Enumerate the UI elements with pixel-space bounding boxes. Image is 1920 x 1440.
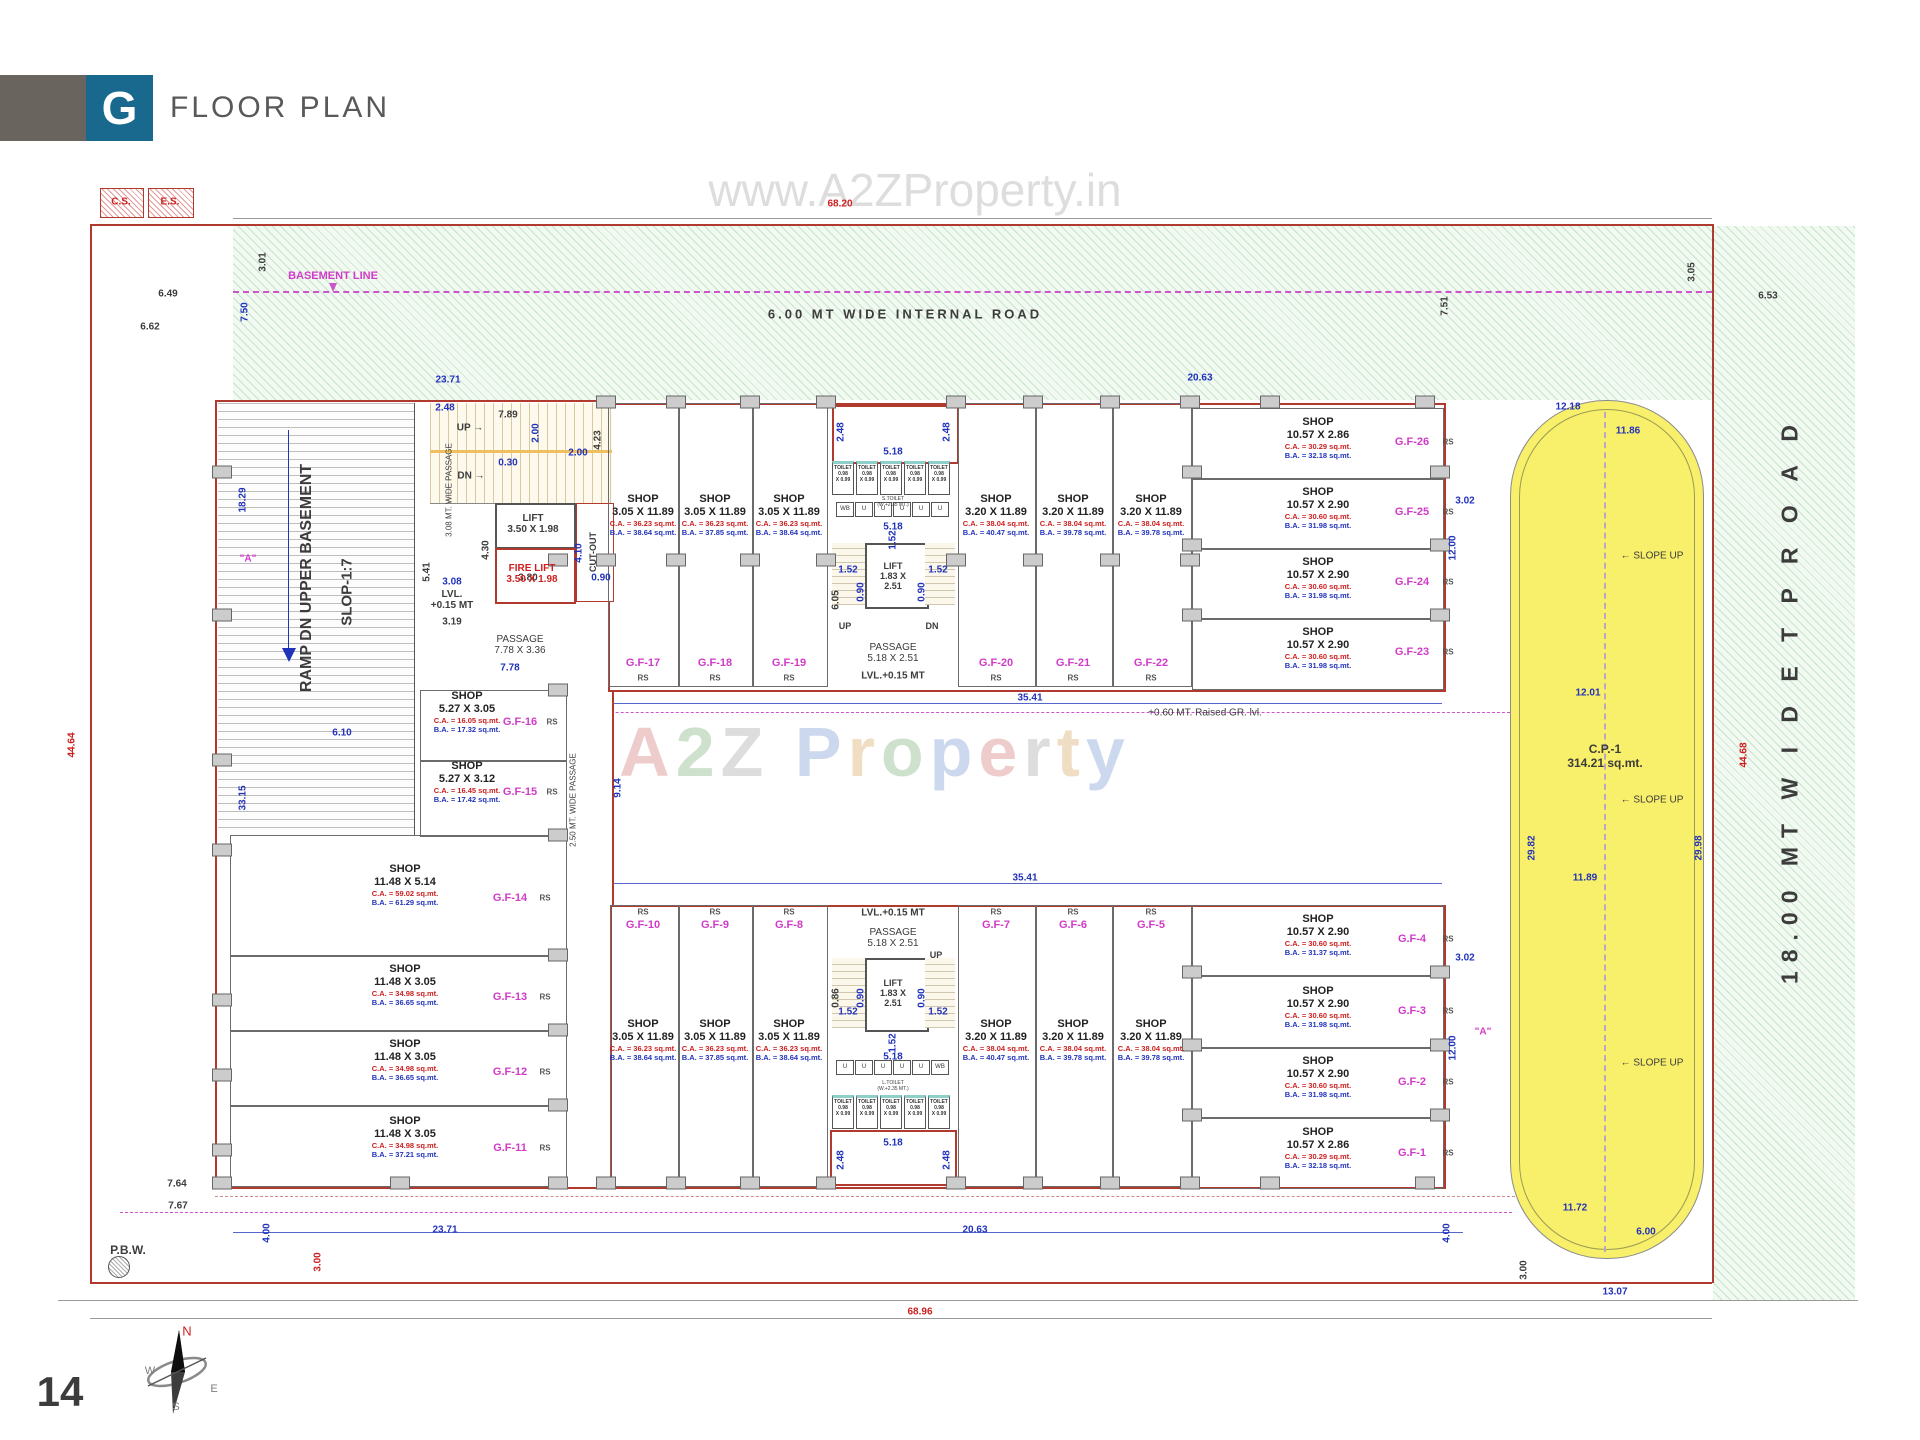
dimension-label: 35.41 — [1012, 873, 1037, 884]
rs-label: RS — [1442, 648, 1453, 657]
plan-label: 2.50 MT. WIDE PASSAGE — [569, 753, 578, 847]
shop-title: SHOP10.57 X 2.90C.A. = 30.60 sq.mt.B.A. … — [1285, 1055, 1352, 1099]
rs-label: RS — [783, 908, 794, 917]
dimension-label: 2.48 — [942, 1150, 953, 1169]
dimension-label: 29.98 — [1694, 835, 1705, 860]
shop-id: G.F-24 — [1395, 576, 1429, 588]
rs-label: RS — [539, 894, 550, 903]
dimension-label: 23.71 — [432, 1225, 457, 1236]
dimension-label: 7.67 — [168, 1201, 187, 1212]
dimension-label: 5.18 — [883, 1052, 902, 1063]
dimension-label: 0.90 — [856, 988, 867, 1007]
wall-column — [596, 396, 616, 409]
wall-column — [1430, 466, 1450, 479]
rs-label: RS — [709, 908, 720, 917]
plan-label: FIRE LIFT 3.50 X 1.98 — [506, 563, 557, 585]
plan-label: UP — [839, 621, 852, 631]
plan-label: S — [172, 1401, 179, 1413]
plan-label: LIFT 1.83 X 2.51 — [880, 561, 906, 591]
shop-room — [1035, 403, 1114, 687]
shop-id: G.F-8 — [775, 919, 803, 931]
wall-column — [816, 396, 836, 409]
toilet-cell: TOILET0.98X 0.99 — [880, 1095, 902, 1129]
plan-label: DN — [926, 621, 939, 631]
shop-room — [752, 403, 828, 687]
dimension-label: 5.18 — [883, 447, 902, 458]
dimension-label: 35.41 — [1017, 693, 1042, 704]
toilet-cell: TOILET0.98X 0.99 — [928, 461, 950, 495]
shop-title: SHOP3.05 X 11.89C.A. = 36.23 sq.mt.B.A. … — [610, 493, 677, 537]
wall-column — [548, 949, 568, 962]
rs-label: RS — [990, 674, 1001, 683]
wall-column — [1023, 1177, 1043, 1190]
wall-column — [1260, 396, 1280, 409]
floor-plan-page: G FLOOR PLAN www.A2ZProperty.in A2Z Prop… — [0, 0, 1920, 1440]
shop-title: SHOP3.05 X 11.89C.A. = 36.23 sq.mt.B.A. … — [756, 493, 823, 537]
shop-id: G.F-7 — [982, 919, 1010, 931]
dimension-label: 23.71 — [435, 375, 460, 386]
wall-column — [548, 1177, 568, 1190]
wall-column — [212, 994, 232, 1007]
dimension-label: 3.00 — [1519, 1260, 1530, 1279]
ramp-down-arrow-icon — [282, 648, 296, 662]
toilet-cell: TOILET0.98X 0.99 — [904, 1095, 926, 1129]
dimension-label: 7.64 — [167, 1179, 186, 1190]
dim-line-bottom — [233, 1232, 1463, 1233]
dimension-label: 20.63 — [962, 1225, 987, 1236]
rs-label: RS — [546, 788, 557, 797]
plan-label: W — [145, 1365, 155, 1377]
wall-column — [212, 466, 232, 479]
dimension-label: 4.00 — [262, 1223, 273, 1242]
dimension-label: 9.14 — [613, 778, 624, 797]
dimension-label: 6.49 — [158, 289, 177, 300]
wall-column — [1180, 1177, 1200, 1190]
dimension-label: 3.01 — [258, 252, 269, 271]
basement-line-arrow — [329, 283, 337, 292]
toilet-cell: TOILET0.98X 0.99 — [880, 461, 902, 495]
shop-id: G.F-16 — [503, 716, 537, 728]
wall-column — [1182, 466, 1202, 479]
dimension-label: 2.48 — [836, 422, 847, 441]
plan-label: E — [210, 1383, 217, 1395]
dimension-label: 6.53 — [1758, 291, 1777, 302]
wall-column — [1180, 396, 1200, 409]
wall-column — [548, 829, 568, 842]
shop-title: SHOP3.20 X 11.89C.A. = 38.04 sq.mt.B.A. … — [1118, 1018, 1185, 1062]
wall-column — [1182, 966, 1202, 979]
rs-label: RS — [709, 674, 720, 683]
urinal-cell: U — [912, 1060, 930, 1075]
dimension-label: 2.48 — [435, 403, 454, 414]
rs-label: RS — [1067, 908, 1078, 917]
dimension-label: 12.00 — [1448, 535, 1459, 560]
plan-label: UP → — [457, 423, 484, 434]
dimension-label: 0.86 — [831, 988, 842, 1007]
shop-id: G.F-2 — [1398, 1076, 1426, 1088]
ramp-centerline — [1604, 412, 1606, 1252]
dimension-label: 3.08 — [442, 577, 461, 588]
dimension-label: 0.90 — [591, 573, 610, 584]
plan-label: ← SLOPE UP — [1621, 1058, 1684, 1069]
dimension-label: 7.78 — [500, 663, 519, 674]
header-bar — [0, 75, 86, 141]
shop-title: SHOP3.05 X 11.89C.A. = 36.23 sq.mt.B.A. … — [682, 493, 749, 537]
bottom-dim-line — [90, 1318, 1712, 1319]
dimension-label: 33.15 — [238, 785, 249, 810]
shop-id: G.F-21 — [1056, 657, 1090, 669]
plan-label: 14 — [37, 1368, 84, 1416]
dimension-label: 3.02 — [1455, 953, 1474, 964]
plan-label: PASSAGE 5.18 X 2.51 — [867, 642, 918, 664]
shop-room — [958, 403, 1037, 687]
shop-room — [1112, 403, 1192, 687]
wall-column — [1100, 396, 1120, 409]
plan-label: 6.00 MT WIDE INTERNAL ROAD — [768, 307, 1042, 322]
urinal-cell: U — [836, 1060, 854, 1075]
dimension-label: 4.30 — [481, 540, 492, 559]
rs-label: RS — [1145, 674, 1156, 683]
rs-label: RS — [546, 718, 557, 727]
toilet-cell: TOILET0.98X 0.99 — [856, 461, 878, 495]
shop-title: SHOP3.20 X 11.89C.A. = 38.04 sq.mt.B.A. … — [1040, 493, 1107, 537]
shop-id: G.F-23 — [1395, 646, 1429, 658]
lower-basement-line — [120, 1212, 1512, 1213]
shop-id: G.F-13 — [493, 991, 527, 1003]
shop-title: SHOP11.48 X 3.05C.A. = 34.98 sq.mt.B.A. … — [372, 1115, 439, 1159]
dimension-label: 7.50 — [240, 302, 251, 321]
dimension-label: 44.64 — [67, 732, 78, 757]
dimension-label: 4.23 — [593, 430, 604, 449]
shop-id: G.F-25 — [1395, 506, 1429, 518]
dimension-label: 3.00 — [313, 1252, 324, 1271]
shop-id: G.F-1 — [1398, 1147, 1426, 1159]
wall-column — [1260, 1177, 1280, 1190]
shop-title: SHOP5.27 X 3.12C.A. = 16.45 sq.mt.B.A. =… — [434, 760, 501, 804]
rs-label: RS — [539, 1144, 550, 1153]
dimension-label: 2.00 — [568, 448, 587, 459]
watermark-url: www.A2ZProperty.in — [708, 163, 1121, 217]
plan-label: +0.60 MT. Raised GR. lvl. — [1148, 708, 1262, 719]
plan-label: P.B.W. — [110, 1243, 146, 1257]
dimension-label: 18.29 — [238, 487, 249, 512]
wall-column — [212, 609, 232, 622]
wall-column — [1430, 966, 1450, 979]
rs-label: RS — [1442, 935, 1453, 944]
shop-title: SHOP5.27 X 3.05C.A. = 16.05 sq.mt.B.A. =… — [434, 690, 501, 734]
dimension-label: 12.18 — [1555, 402, 1580, 413]
shop-title: SHOP10.57 X 2.90C.A. = 30.60 sq.mt.B.A. … — [1285, 985, 1352, 1029]
parking-ramp — [1510, 400, 1704, 1259]
plan-label: RAMP DN UPPER BASEMENT — [298, 464, 316, 692]
toilet-cell: TOILET0.98X 0.99 — [904, 461, 926, 495]
plan-label: LVL.+0.15 MT — [861, 908, 924, 919]
rs-label: RS — [1442, 1078, 1453, 1087]
rs-label: RS — [1067, 674, 1078, 683]
rs-label: RS — [1442, 578, 1453, 587]
rs-label: RS — [539, 1068, 550, 1077]
wall-column — [666, 554, 686, 567]
dimension-label: 29.82 — [1527, 835, 1538, 860]
dimension-label: 3.02 — [1455, 496, 1474, 507]
urinal-cell: U — [931, 502, 949, 517]
urinal-cell: U — [855, 1060, 873, 1075]
shop-title: SHOP3.05 X 11.89C.A. = 36.23 sq.mt.B.A. … — [682, 1018, 749, 1062]
plan-label: N — [182, 1324, 191, 1339]
plan-label: LIFT 1.83 X 2.51 — [880, 978, 906, 1008]
plan-label: SLOP-1:7 — [339, 558, 356, 626]
plan-label: PASSAGE 5.18 X 2.51 — [867, 927, 918, 949]
wall-column — [548, 1099, 568, 1112]
basement-line — [233, 291, 1712, 293]
shop-title: SHOP3.05 X 11.89C.A. = 36.23 sq.mt.B.A. … — [610, 1018, 677, 1062]
shop-room — [608, 403, 680, 687]
urinal-cell: U — [855, 502, 873, 517]
dimension-label: 6.05 — [831, 590, 842, 609]
shop-title: SHOP3.20 X 11.89C.A. = 38.04 sq.mt.B.A. … — [1040, 1018, 1107, 1062]
dimension-label: 11.86 — [1616, 426, 1640, 437]
dimension-label: 4.10 — [574, 543, 585, 562]
dimension-label: 11.72 — [1563, 1203, 1587, 1214]
wall-column — [1415, 396, 1435, 409]
wall-column — [212, 1177, 232, 1190]
dimension-label: 44.68 — [1739, 742, 1750, 767]
wall-column — [666, 396, 686, 409]
toilet-cell: TOILET0.98X 0.99 — [856, 1095, 878, 1129]
dimension-label: 7.51 — [1440, 296, 1451, 315]
shop-id: G.F-15 — [503, 786, 537, 798]
shop-id: G.F-5 — [1137, 919, 1165, 931]
rs-label: RS — [1442, 508, 1453, 517]
shop-title: SHOP11.48 X 3.05C.A. = 34.98 sq.mt.B.A. … — [372, 1038, 439, 1082]
shop-title: SHOP10.57 X 2.90C.A. = 30.60 sq.mt.B.A. … — [1285, 626, 1352, 670]
wall-column — [1182, 1039, 1202, 1052]
wall-column — [548, 1024, 568, 1037]
wall-column — [548, 684, 568, 697]
dimension-label: 1.52 — [838, 565, 857, 576]
plan-label: S.TOILET (W.+2.35 MT.) — [877, 496, 908, 508]
wall-column — [1023, 554, 1043, 567]
lower-dashed-line — [215, 1196, 1515, 1197]
shop-id: G.F-12 — [493, 1066, 527, 1078]
shop-title: SHOP11.48 X 5.14C.A. = 59.02 sq.mt.B.A. … — [372, 863, 439, 907]
watermark-logo: A2Z Property — [619, 712, 1131, 792]
wall-column — [740, 554, 760, 567]
shop-room — [678, 403, 754, 687]
wall-column — [1182, 539, 1202, 552]
plan-label: ← SLOPE UP — [1621, 795, 1684, 806]
plan-label: C.P.-1 314.21 sq.mt. — [1567, 742, 1642, 770]
pbw-marker — [108, 1256, 130, 1278]
shop-title: SHOP11.48 X 3.05C.A. = 34.98 sq.mt.B.A. … — [372, 963, 439, 1007]
ramp-area — [218, 403, 415, 835]
plan-label: LVL. +0.15 MT — [431, 589, 474, 611]
plan-label: "A" — [240, 554, 257, 565]
boundary-left — [90, 224, 92, 1283]
dimension-label: 6.62 — [140, 322, 159, 333]
dimension-label: 2.48 — [942, 422, 953, 441]
toilet-cell: TOILET0.98X 0.99 — [832, 1095, 854, 1129]
dimension-label: 68.96 — [907, 1307, 932, 1318]
dimension-label: 3.05 — [1687, 262, 1698, 281]
wall-column — [1023, 396, 1043, 409]
dimension-label: 0.90 — [917, 582, 928, 601]
wall-column — [596, 554, 616, 567]
shop-id: G.F-11 — [493, 1142, 527, 1154]
wall-column — [1430, 609, 1450, 622]
rs-label: RS — [637, 908, 648, 917]
dimension-label: 5.18 — [883, 1138, 902, 1149]
urinal-cell: WB — [836, 502, 854, 517]
dimension-label: 0.90 — [856, 582, 867, 601]
dimension-label: 0.90 — [917, 988, 928, 1007]
wall-column — [1430, 1109, 1450, 1122]
rs-label: RS — [1442, 1007, 1453, 1016]
shop-id: G.F-4 — [1398, 933, 1426, 945]
shop-id: G.F-6 — [1059, 919, 1087, 931]
outer-gray-line — [58, 1300, 1858, 1301]
boundary-top — [90, 224, 1712, 226]
shop-title: SHOP10.57 X 2.86C.A. = 30.29 sq.mt.B.A. … — [1285, 416, 1352, 460]
wall-column — [212, 844, 232, 857]
shop-title: SHOP10.57 X 2.90C.A. = 30.60 sq.mt.B.A. … — [1285, 556, 1352, 600]
shop-title: SHOP3.20 X 11.89C.A. = 38.04 sq.mt.B.A. … — [963, 493, 1030, 537]
shop-id: G.F-9 — [701, 919, 729, 931]
toilet-cell: TOILET0.98X 0.99 — [832, 461, 854, 495]
plan-label: C.S. — [111, 197, 130, 208]
wall-column — [1182, 1109, 1202, 1122]
wall-column — [1180, 554, 1200, 567]
wall-column — [596, 1177, 616, 1190]
plan-label: L.TOILET (W.+2.35 MT.) — [877, 1080, 908, 1092]
plan-label: LIFT 3.50 X 1.98 — [507, 513, 558, 535]
shop-title: SHOP10.57 X 2.90C.A. = 30.60 sq.mt.B.A. … — [1285, 486, 1352, 530]
wall-column — [1415, 1177, 1435, 1190]
wall-column — [946, 554, 966, 567]
shop-id: G.F-26 — [1395, 436, 1429, 448]
plan-label: E.S. — [161, 197, 180, 208]
wall-column — [212, 754, 232, 767]
shop-id: G.F-10 — [626, 919, 660, 931]
rs-label: RS — [1145, 908, 1156, 917]
plan-label: LVL.+0.15 MT — [861, 671, 924, 682]
shop-title: SHOP3.20 X 11.89C.A. = 38.04 sq.mt.B.A. … — [963, 1018, 1030, 1062]
toilet-cell: TOILET0.98X 0.99 — [928, 1095, 950, 1129]
plan-label: CUT-OUT — [588, 532, 598, 572]
plan-label: "A" — [1475, 1027, 1492, 1038]
shop-id: G.F-18 — [698, 657, 732, 669]
dimension-label: 68.20 — [827, 199, 852, 210]
shop-id: G.F-3 — [1398, 1005, 1426, 1017]
wall-column — [1100, 554, 1120, 567]
dimension-label: 0.30 — [498, 458, 517, 469]
urinal-cell: WB — [931, 1060, 949, 1075]
dimension-label: 7.89 — [498, 410, 517, 421]
dimension-label: 6.10 — [332, 728, 351, 739]
plan-label: UP — [930, 950, 943, 960]
dimension-label: 1.52 — [928, 1007, 947, 1018]
urinal-cell: U — [912, 502, 930, 517]
dimension-label: 3.19 — [442, 617, 461, 628]
dimension-label: 12.01 — [1575, 688, 1600, 699]
dimension-label: 1.52 — [888, 530, 899, 549]
plan-label: 18.00 MT W I D E T P R O A D — [1777, 416, 1804, 984]
rs-label: RS — [783, 674, 794, 683]
wall-column — [390, 1177, 410, 1190]
shop-id: G.F-17 — [626, 657, 660, 669]
wall-column — [740, 1177, 760, 1190]
wall-column — [816, 554, 836, 567]
dimension-label: 20.63 — [1187, 373, 1212, 384]
wall-column — [212, 1069, 232, 1082]
plan-label: ← SLOPE UP — [1621, 551, 1684, 562]
wall-column — [816, 1177, 836, 1190]
rs-label: RS — [539, 993, 550, 1002]
shop-title: SHOP3.05 X 11.89C.A. = 36.23 sq.mt.B.A. … — [756, 1018, 823, 1062]
wall-column — [212, 1144, 232, 1157]
dimension-label: 4.00 — [1442, 1223, 1453, 1242]
boundary-right — [1712, 224, 1714, 1283]
dimension-label: 1.52 — [838, 1007, 857, 1018]
ramp-dim-line — [288, 430, 289, 648]
shop-title: SHOP10.57 X 2.90C.A. = 30.60 sq.mt.B.A. … — [1285, 913, 1352, 957]
wall-column — [666, 1177, 686, 1190]
wall-column — [1182, 609, 1202, 622]
boundary-bottom — [90, 1282, 1712, 1284]
shop-title: SHOP10.57 X 2.86C.A. = 30.29 sq.mt.B.A. … — [1285, 1126, 1352, 1170]
wall-column — [740, 396, 760, 409]
rs-label: RS — [990, 908, 1001, 917]
page-title: FLOOR PLAN — [170, 91, 390, 125]
dimension-label: 2.00 — [531, 423, 542, 442]
core-bottom-stair-right — [925, 958, 955, 1028]
dimension-label: 1.52 — [888, 1033, 899, 1052]
dimension-label: 2.48 — [836, 1150, 847, 1169]
shop-id: G.F-19 — [772, 657, 806, 669]
plan-label: DN → — [457, 471, 484, 482]
plan-label: PASSAGE 7.78 X 3.36 — [494, 634, 545, 656]
shop-id: G.F-22 — [1134, 657, 1168, 669]
dimension-label: 5.41 — [422, 562, 433, 581]
plan-label: BASEMENT LINE — [288, 270, 378, 282]
dimension-label: 1.52 — [928, 565, 947, 576]
rs-label: RS — [637, 674, 648, 683]
shop-id: G.F-20 — [979, 657, 1013, 669]
dimension-label: 13.07 — [1602, 1287, 1627, 1298]
wall-column — [1100, 1177, 1120, 1190]
dimension-label: 11.89 — [1573, 873, 1597, 884]
rs-label: RS — [1442, 438, 1453, 447]
wall-column — [946, 396, 966, 409]
plan-label: 3.08 MT. WIDE PASSAGE — [445, 443, 454, 537]
top-dim-line — [233, 218, 1712, 219]
dimension-label: 12.00 — [1448, 1035, 1459, 1060]
shop-id: G.F-14 — [493, 892, 527, 904]
wall-column — [946, 1177, 966, 1190]
rs-label: RS — [1442, 1149, 1453, 1158]
logo-letter-box: G — [86, 75, 153, 141]
dimension-label: 6.00 — [1636, 1227, 1655, 1238]
shop-title: SHOP3.20 X 11.89C.A. = 38.04 sq.mt.B.A. … — [1118, 493, 1185, 537]
